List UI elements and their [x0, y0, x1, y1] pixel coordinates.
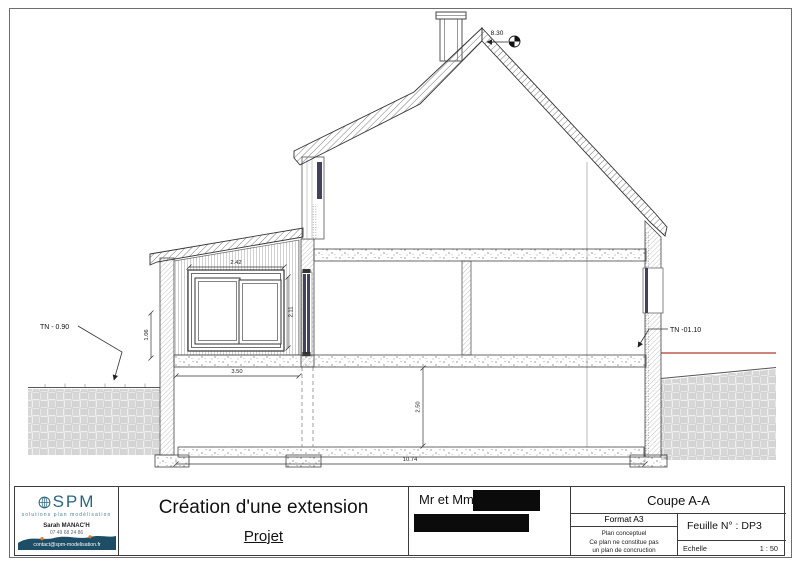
house-upper-left-wall	[302, 157, 324, 239]
title-block: SPM solutions plan modélisation Sarah MA…	[14, 486, 785, 556]
globe-icon	[38, 496, 51, 509]
disclaimer-line-3: un plan de concruction	[571, 547, 677, 556]
client-cell: Mr et Mme	[409, 487, 571, 555]
basement-wall-hidden	[302, 367, 313, 447]
house-left-wall-glazing	[302, 269, 312, 356]
extension-sliding-window	[188, 270, 284, 351]
card-wave-banner: contact@spm-modelisation.fr	[18, 531, 116, 550]
section-drawing: 8.30 TN - 0.90 TN -01.10	[0, 0, 800, 566]
roof-right-slope	[482, 28, 667, 236]
project-subtitle: Projet	[244, 528, 283, 545]
dim-window-height: 2.11	[289, 307, 295, 318]
dim-cladding-height: 1.06	[144, 329, 150, 340]
ground-floor-slab	[174, 355, 646, 367]
interior-wall	[462, 261, 471, 355]
company-logo: SPM	[15, 492, 118, 512]
plan-sheet: 8.30 TN - 0.90 TN -01.10	[0, 0, 800, 566]
tn-left-annotation: TN - 0.90	[40, 324, 122, 380]
dim-extension-width: 3.50	[231, 369, 242, 375]
brand-name: SPM	[53, 492, 96, 512]
format-cell: Format A3 Plan conceptuel Ce plan ne con…	[571, 513, 678, 555]
terrain-left	[28, 384, 160, 456]
project-title-cell: Création d'une extension Projet	[119, 487, 409, 555]
dim-window-width: 2.42	[230, 260, 241, 266]
company-card: SPM solutions plan modélisation Sarah MA…	[15, 487, 119, 555]
tn-right-label: TN -01.10	[670, 327, 701, 334]
upper-floor-slab	[314, 249, 646, 261]
upper-window-glazing	[317, 162, 322, 199]
wave-dot-right	[88, 535, 91, 538]
client-prefix: Mr et Mme	[419, 492, 481, 507]
extension-left-wall	[160, 258, 174, 455]
scale-row: Echelle 1 : 50	[678, 540, 786, 555]
redacted-client-address	[414, 514, 529, 532]
disclaimer-line-2: Ce plan ne constitue pas	[571, 539, 677, 548]
view-title: Coupe A-A	[571, 487, 786, 514]
contact-email: contact@spm-modelisation.fr	[33, 542, 101, 548]
ridge-level-value: 8.30	[491, 30, 504, 37]
project-title: Création d'une extension	[159, 497, 369, 519]
disclaimer-line-1: Plan conceptuel	[571, 530, 677, 539]
dim-total-width: 10.74	[403, 457, 418, 463]
sheet-info-cell: Coupe A-A Format A3 Plan conceptuel Ce p…	[571, 487, 786, 555]
terrain-right	[661, 368, 776, 461]
wave-dot-left	[40, 537, 43, 540]
sheet-number: Feuille N° : DP3	[678, 513, 786, 532]
brand-tagline: solutions plan modélisation	[15, 512, 118, 518]
redacted-client-name	[473, 490, 540, 511]
tn-left-label: TN - 0.90	[40, 324, 69, 331]
format-label: Format A3	[571, 513, 677, 527]
level-symbol-icon	[509, 36, 520, 47]
scale-value: 1 : 50	[760, 544, 778, 553]
contact-name: Sarah MANAC'H	[15, 523, 118, 529]
basement-slab	[178, 447, 644, 457]
scale-label: Echelle	[683, 544, 707, 553]
dim-basement-height: 2.50	[416, 401, 422, 412]
sheet-number-cell: Feuille N° : DP3 Echelle 1 : 50	[678, 513, 786, 555]
